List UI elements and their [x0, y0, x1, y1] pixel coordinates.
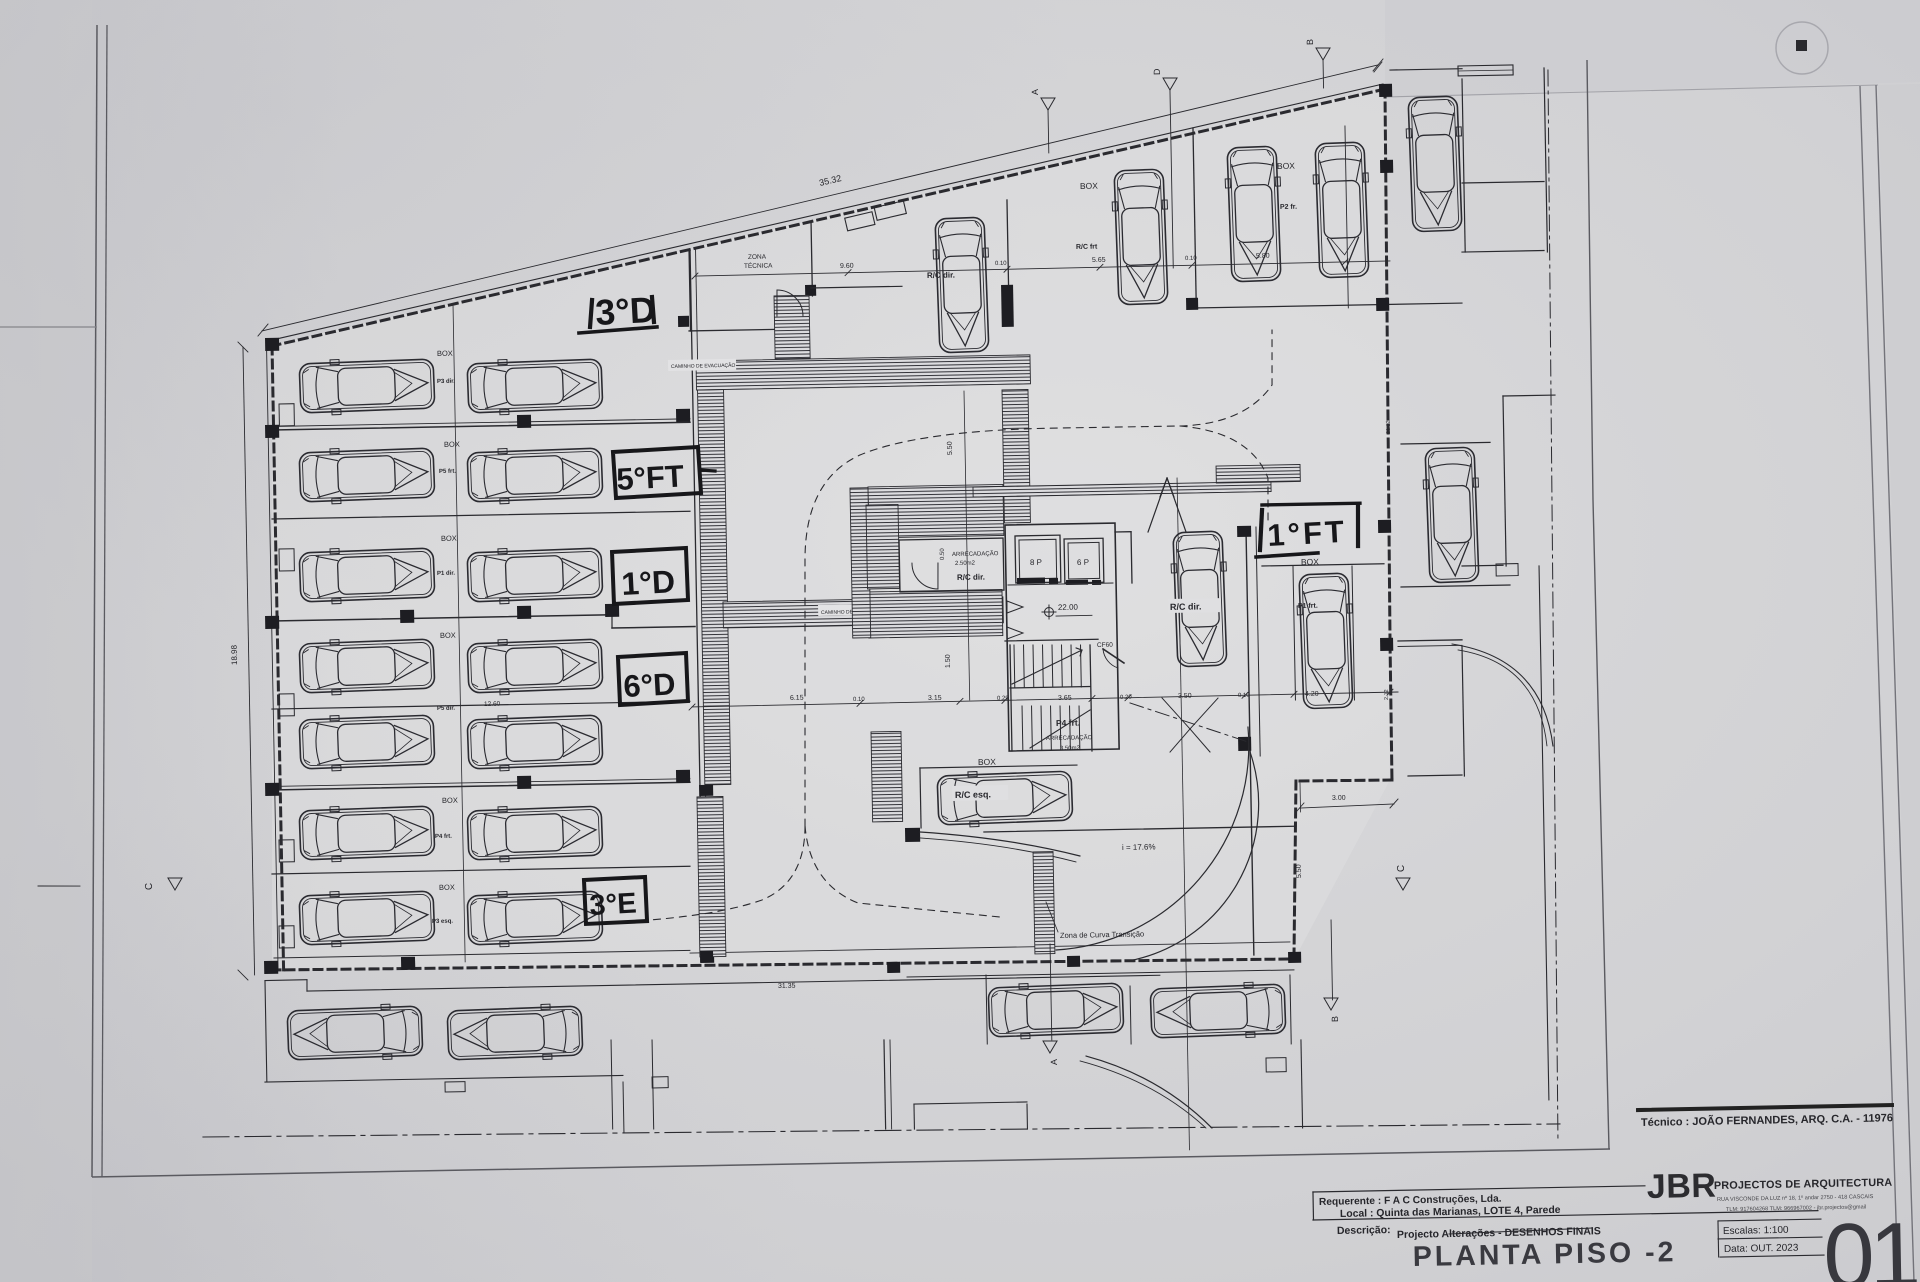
svg-text:JBR: JBR [1646, 1167, 1716, 1206]
svg-text:R/C dir.: R/C dir. [1170, 601, 1202, 612]
svg-text:R/C dir.: R/C dir. [957, 573, 985, 583]
svg-text:ZONA: ZONA [748, 254, 767, 261]
svg-text:P1 frt.: P1 frt. [1298, 603, 1318, 610]
svg-text:CF60: CF60 [1097, 642, 1113, 649]
svg-text:1°FT: 1°FT [1267, 514, 1348, 553]
svg-text:3.65: 3.65 [1058, 695, 1072, 702]
svg-text:5.65: 5.65 [1092, 257, 1106, 264]
svg-text:2.12: 2.12 [1384, 689, 1390, 700]
svg-text:0.50: 0.50 [940, 548, 946, 560]
svg-text:3.50m2: 3.50m2 [1060, 746, 1081, 752]
svg-text:A: A [1049, 1059, 1059, 1065]
svg-text:BOX: BOX [437, 349, 453, 358]
svg-text:8 P: 8 P [1030, 558, 1042, 567]
svg-text:4.20: 4.20 [1305, 691, 1319, 698]
svg-text:6 P: 6 P [1077, 558, 1089, 567]
svg-text:i = 17.6%: i = 17.6% [1122, 842, 1156, 852]
svg-text:0.29: 0.29 [997, 696, 1009, 702]
svg-text:P1 dir.: P1 dir. [437, 571, 455, 577]
svg-text:0.10: 0.10 [853, 697, 865, 703]
svg-text:P4 frt.: P4 frt. [435, 834, 452, 840]
svg-text:BOX: BOX [441, 534, 457, 543]
svg-text:3.15: 3.15 [928, 695, 942, 702]
svg-text:1°D: 1°D [620, 563, 676, 602]
svg-text:Descrição:: Descrição: [1337, 1224, 1391, 1237]
svg-text:0.20: 0.20 [1120, 695, 1132, 701]
svg-text:22.00: 22.00 [1058, 603, 1079, 612]
svg-text:BOX: BOX [1277, 161, 1295, 171]
svg-text:P5 frt.: P5 frt. [439, 469, 456, 475]
svg-text:BOX: BOX [440, 631, 456, 640]
svg-text:ARRECADAÇÃO: ARRECADAÇÃO [952, 550, 999, 558]
svg-text:Escalas: 1:100: Escalas: 1:100 [1723, 1225, 1789, 1237]
svg-text:5.50: 5.50 [947, 441, 954, 455]
svg-text:2.50m2: 2.50m2 [955, 561, 976, 567]
svg-text:R/C dir.: R/C dir. [927, 271, 955, 281]
svg-text:P3 dir.: P3 dir. [437, 379, 455, 385]
svg-text:B: B [1305, 39, 1315, 45]
svg-text:P3 esq.: P3 esq. [432, 919, 453, 925]
svg-text:R/C frt: R/C frt [1076, 244, 1098, 251]
svg-text:0.10: 0.10 [995, 261, 1007, 267]
svg-text:P4 frt.: P4 frt. [1056, 718, 1080, 728]
svg-text:BOX: BOX [442, 796, 458, 805]
svg-text:R/C esq.: R/C esq. [955, 789, 991, 800]
svg-text:Data: OUT. 2023: Data: OUT. 2023 [1724, 1243, 1799, 1255]
svg-text:5.50: 5.50 [1296, 864, 1303, 878]
svg-text:5°FT: 5°FT [615, 458, 684, 497]
svg-text:18.98: 18.98 [230, 644, 239, 665]
svg-text:21.12: 21.12 [1386, 420, 1392, 434]
svg-text:ARRECADAÇÃO: ARRECADAÇÃO [1046, 734, 1093, 742]
svg-text:3.50: 3.50 [1178, 693, 1192, 700]
svg-text:12.60: 12.60 [484, 701, 501, 708]
svg-text:A: A [1030, 89, 1040, 95]
svg-text:01: 01 [1823, 1204, 1918, 1282]
svg-text:D: D [1152, 68, 1162, 75]
svg-text:6.15: 6.15 [790, 695, 804, 702]
svg-text:1.50: 1.50 [945, 654, 952, 668]
svg-text:9.60: 9.60 [840, 263, 854, 270]
svg-text:CAMINHO DE EVACUAÇÃO: CAMINHO DE EVACUAÇÃO [671, 362, 736, 370]
svg-text:6°D: 6°D [623, 666, 677, 704]
svg-text:B: B [1330, 1016, 1340, 1022]
svg-text:C: C [1396, 865, 1407, 872]
svg-text:BOX: BOX [439, 883, 455, 892]
svg-text:P5 dir.: P5 dir. [437, 706, 455, 712]
svg-text:3.00: 3.00 [1332, 795, 1346, 802]
svg-text:BOX: BOX [1080, 181, 1098, 191]
svg-text:BOX: BOX [978, 757, 996, 767]
svg-text:31.35: 31.35 [778, 983, 796, 990]
svg-text:BOX: BOX [444, 440, 460, 449]
svg-text:PLANTA PISO -2: PLANTA PISO -2 [1412, 1236, 1676, 1273]
svg-text:P2 fr.: P2 fr. [1280, 204, 1297, 211]
svg-text:C: C [144, 883, 155, 890]
svg-text:3°E: 3°E [589, 888, 638, 922]
svg-text:BOX: BOX [1301, 557, 1319, 567]
